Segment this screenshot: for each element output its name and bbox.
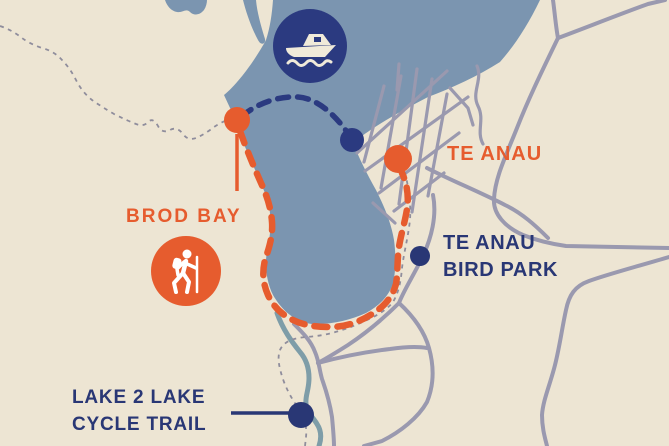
bird-park-label-line1: TE ANAU xyxy=(443,232,535,254)
cycle-trail-dot xyxy=(288,402,314,428)
boat-badge xyxy=(273,9,347,83)
brod-bay-label: BROD BAY xyxy=(126,204,242,230)
map-canvas xyxy=(0,0,669,446)
boat-harbor-dot xyxy=(340,128,364,152)
cycle-trail-label-line2: CYCLE TRAIL xyxy=(72,414,206,435)
hiker-badge xyxy=(151,236,221,306)
map-illustration: BROD BAY TE ANAU TE ANAUBIRD PARK LAKE 2… xyxy=(0,0,669,446)
brod-bay-marker xyxy=(224,107,250,133)
bird-park-label-line2: BIRD PARK xyxy=(443,259,558,281)
bird-park-dot xyxy=(410,246,430,266)
cycle-trail-label-line1: LAKE 2 LAKE xyxy=(72,387,205,408)
bird-park-label: TE ANAUBIRD PARK xyxy=(443,230,558,284)
hiker-badge-circle xyxy=(151,236,221,306)
boat-badge-circle xyxy=(273,9,347,83)
te-anau-dot xyxy=(384,145,412,173)
street xyxy=(397,64,399,90)
cycle-trail-label: LAKE 2 LAKECYCLE TRAIL xyxy=(72,384,206,438)
te-anau-label: TE ANAU xyxy=(447,141,542,167)
